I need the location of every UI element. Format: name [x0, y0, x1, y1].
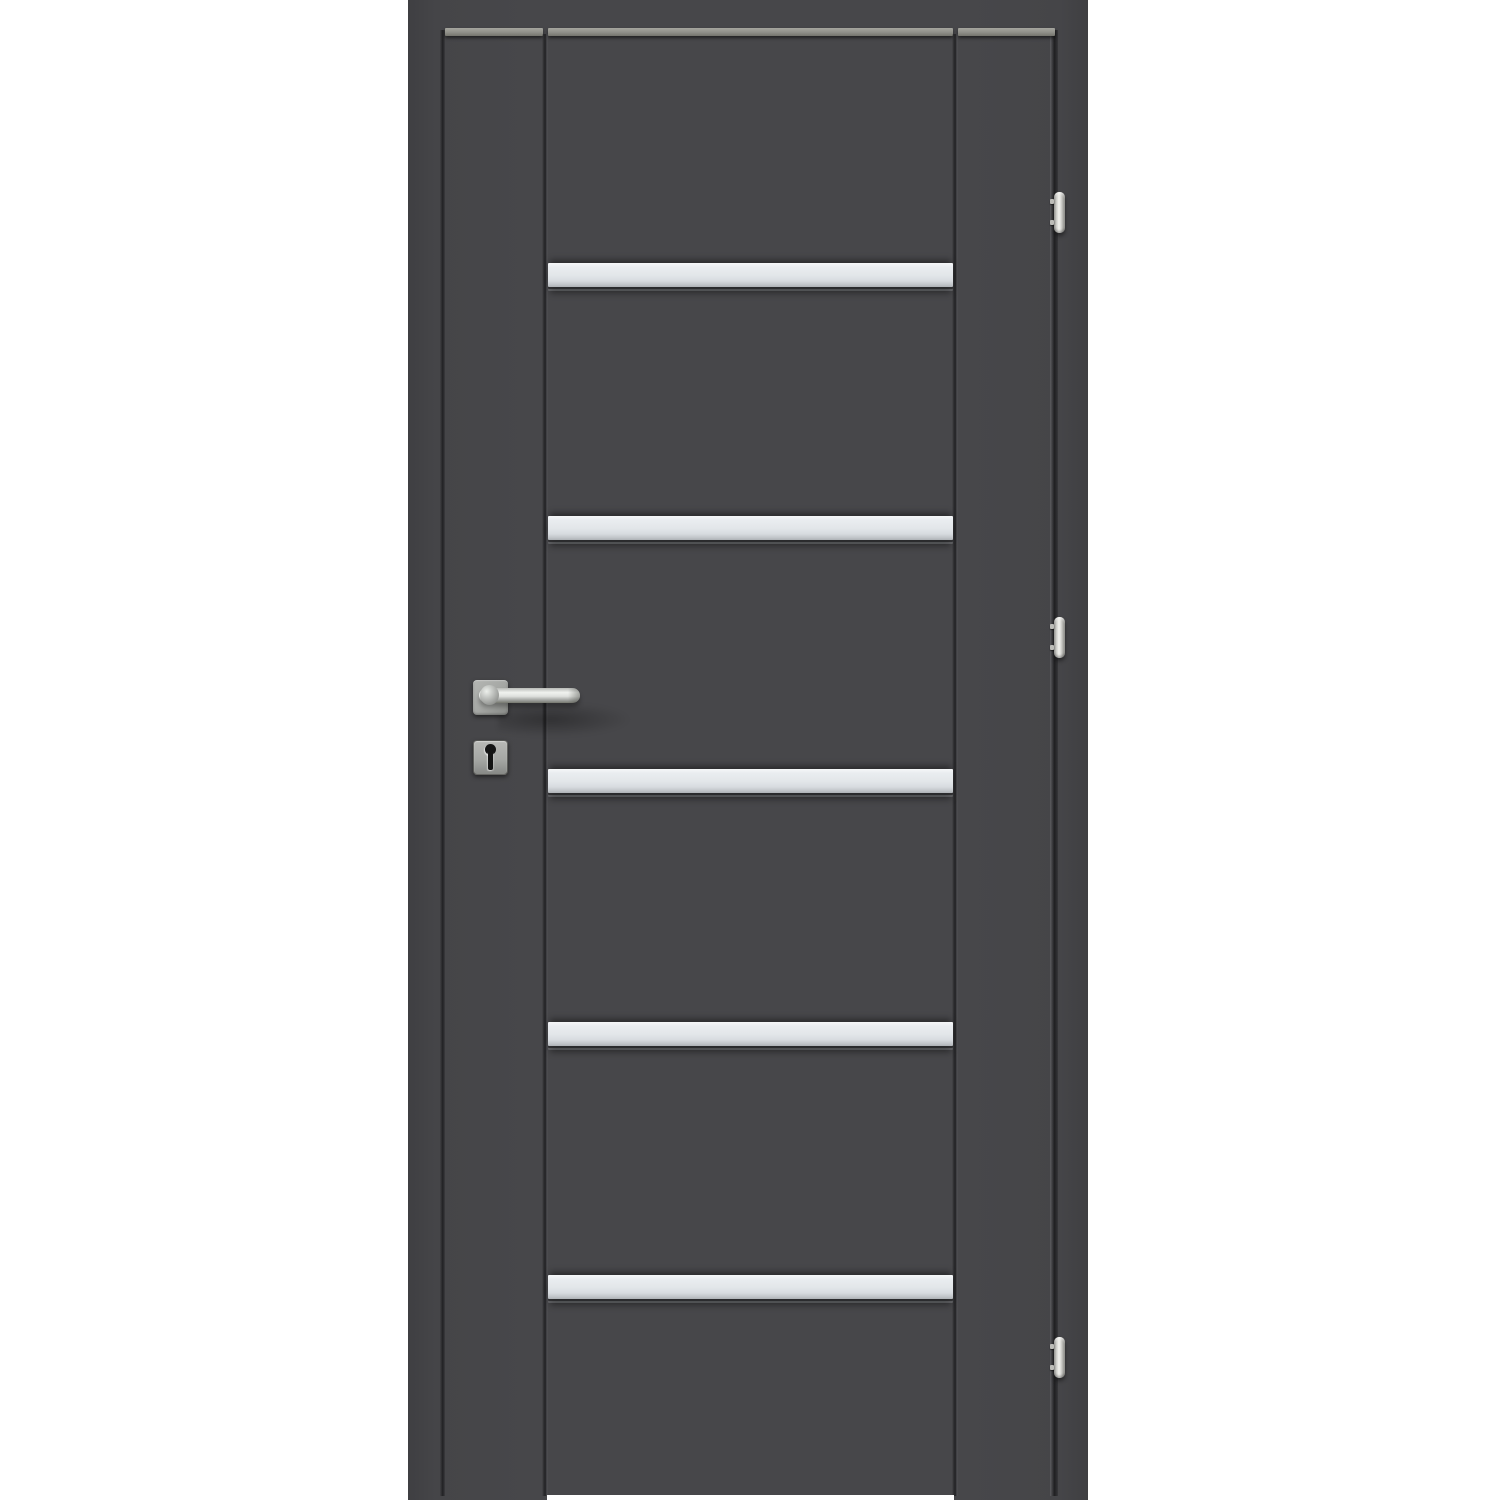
lever-handle — [479, 688, 580, 703]
hinge-bottom — [1054, 1337, 1065, 1378]
glass-strip-4 — [548, 1022, 953, 1046]
glass-strip-2 — [548, 516, 953, 540]
bottom-floor-gap — [547, 1495, 954, 1500]
lever-handle-shadow — [498, 705, 633, 737]
door-top-edge-right-stile — [958, 28, 1055, 36]
hinge-middle — [1054, 617, 1065, 658]
door-top-edge-left-stile — [445, 28, 543, 36]
glass-strip-1 — [548, 263, 953, 287]
keyhole-stem — [488, 752, 493, 770]
door-top-edge-center — [548, 28, 953, 36]
glass-strip-5 — [548, 1275, 953, 1299]
leaf-frame-gap-right — [1050, 30, 1058, 1496]
product-photo-scene — [0, 0, 1500, 1500]
glass-strip-3 — [548, 769, 953, 793]
hinge-top — [1054, 192, 1065, 233]
leaf-frame-gap-left — [440, 30, 445, 1496]
